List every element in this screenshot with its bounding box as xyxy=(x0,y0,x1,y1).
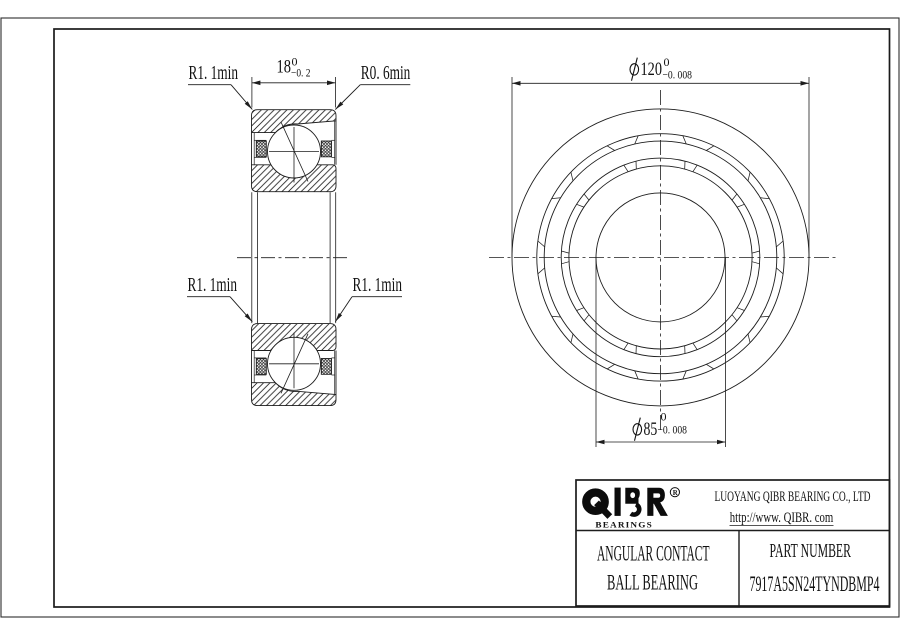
svg-text:http://www. QIBR. com: http://www. QIBR. com xyxy=(730,510,834,526)
svg-text:R0. 6min: R0. 6min xyxy=(361,62,411,84)
svg-text:18: 18 xyxy=(277,57,292,78)
svg-text:0: 0 xyxy=(661,410,667,424)
svg-text:−0. 008: −0. 008 xyxy=(663,68,693,82)
svg-text:LUOYANG QIBR BEARING CO., LTD: LUOYANG QIBR BEARING CO., LTD xyxy=(715,489,871,505)
svg-text:R: R xyxy=(673,490,678,497)
svg-text:ANGULAR CONTACT: ANGULAR CONTACT xyxy=(597,542,710,566)
svg-text:R1. 1min: R1. 1min xyxy=(353,274,403,296)
svg-text:BALL BEARING: BALL BEARING xyxy=(607,570,698,594)
svg-text:R1. 1min: R1. 1min xyxy=(188,274,238,296)
svg-text:85: 85 xyxy=(644,419,658,440)
svg-text:7917A5SN24TYNDBMP4: 7917A5SN24TYNDBMP4 xyxy=(750,571,880,596)
svg-text:BEARINGS: BEARINGS xyxy=(595,520,653,530)
svg-text:−0. 2: −0. 2 xyxy=(291,66,311,80)
svg-text:R1. 1min: R1. 1min xyxy=(189,62,239,84)
svg-text:120: 120 xyxy=(641,59,663,80)
svg-text:PART NUMBER: PART NUMBER xyxy=(770,541,852,562)
svg-text:−0. 008: −0. 008 xyxy=(658,423,688,437)
